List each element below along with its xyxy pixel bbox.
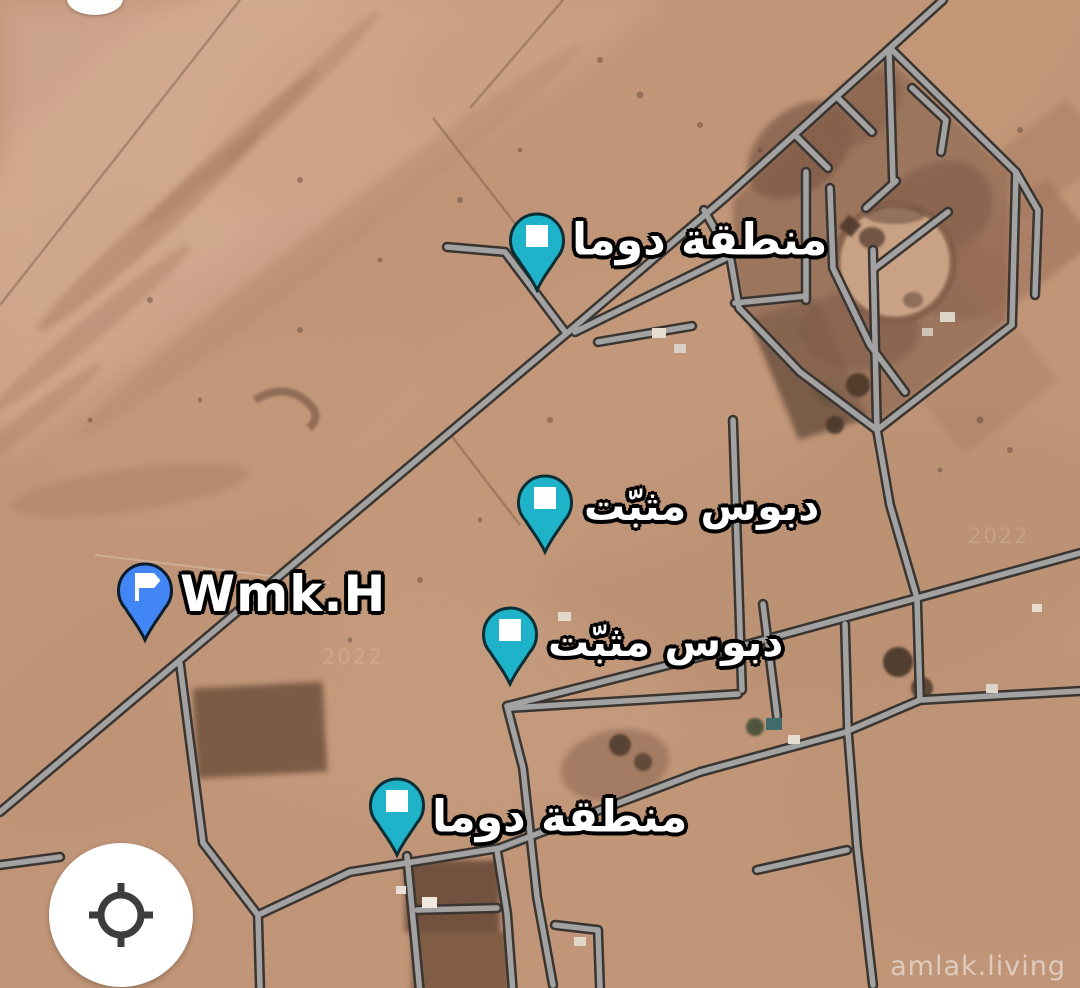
pin-label-douma-north: منطقة دوما <box>572 215 827 266</box>
pin-square-glyph <box>534 487 556 509</box>
imagery-ghost-year: 2022 <box>322 645 383 669</box>
map-canvas[interactable]: 2022 2022 منطقة دوما دبوس مثبّت دبوس مثب… <box>0 0 1080 988</box>
map-pin-wmk[interactable] <box>113 556 177 646</box>
pin-label-douma-south: منطقة دوما <box>432 792 687 843</box>
pin-label-dropped-1: دبوس مثبّت <box>584 482 819 530</box>
watermark: amlak.living <box>890 951 1066 982</box>
pin-label-wmk: Wmk.H <box>180 565 386 623</box>
my-location-button[interactable] <box>49 843 193 987</box>
pin-square-glyph <box>499 619 521 641</box>
pin-label-dropped-2: دبوس مثبّت <box>548 618 783 666</box>
pin-square-glyph <box>526 225 548 247</box>
map-pin-dropped-2[interactable] <box>478 600 542 690</box>
pin-square-glyph <box>386 790 408 812</box>
map-pin-dropped-1[interactable] <box>513 468 577 558</box>
imagery-ghost-year: 2022 <box>968 524 1029 548</box>
my-location-icon <box>80 874 162 956</box>
map-pin-douma-south[interactable] <box>365 771 429 861</box>
map-pin-douma-north[interactable] <box>505 206 569 296</box>
